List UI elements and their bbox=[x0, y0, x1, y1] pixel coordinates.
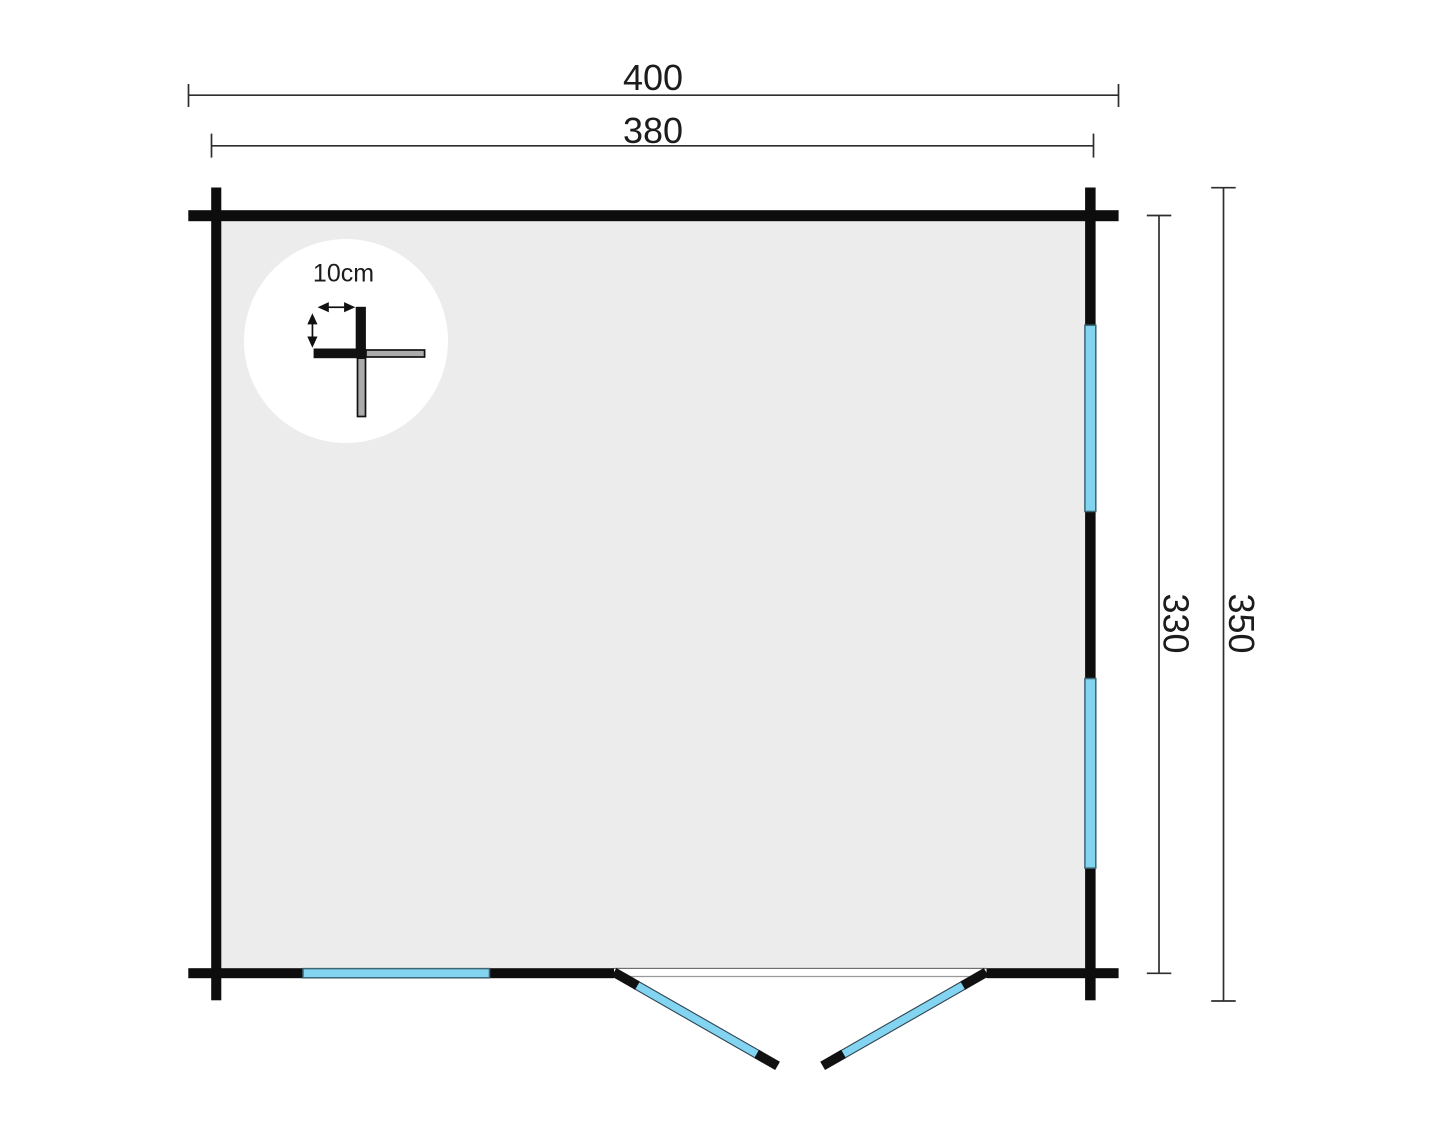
svg-text:10cm: 10cm bbox=[313, 260, 374, 288]
svg-text:400: 400 bbox=[623, 57, 683, 98]
svg-text:380: 380 bbox=[623, 110, 683, 151]
svg-text:330: 330 bbox=[1156, 593, 1197, 653]
svg-text:350: 350 bbox=[1221, 593, 1262, 653]
